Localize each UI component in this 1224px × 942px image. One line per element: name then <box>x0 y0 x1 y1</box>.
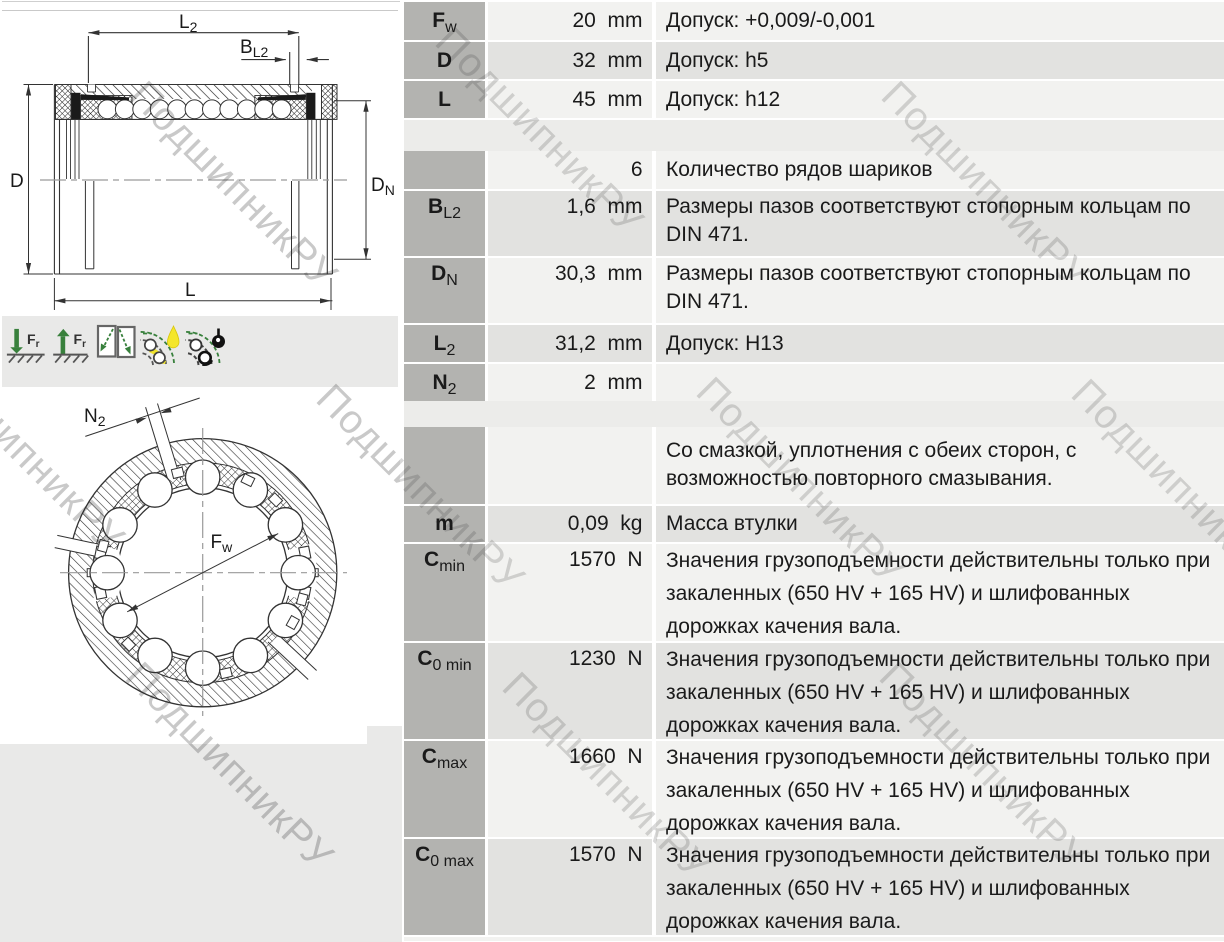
svg-text:L2: L2 <box>179 12 198 35</box>
svg-text:L: L <box>185 280 196 301</box>
svg-text:BL2: BL2 <box>240 37 268 60</box>
svg-text:DN: DN <box>371 175 395 198</box>
svg-text:D: D <box>10 171 24 192</box>
svg-text:N2: N2 <box>84 406 106 429</box>
